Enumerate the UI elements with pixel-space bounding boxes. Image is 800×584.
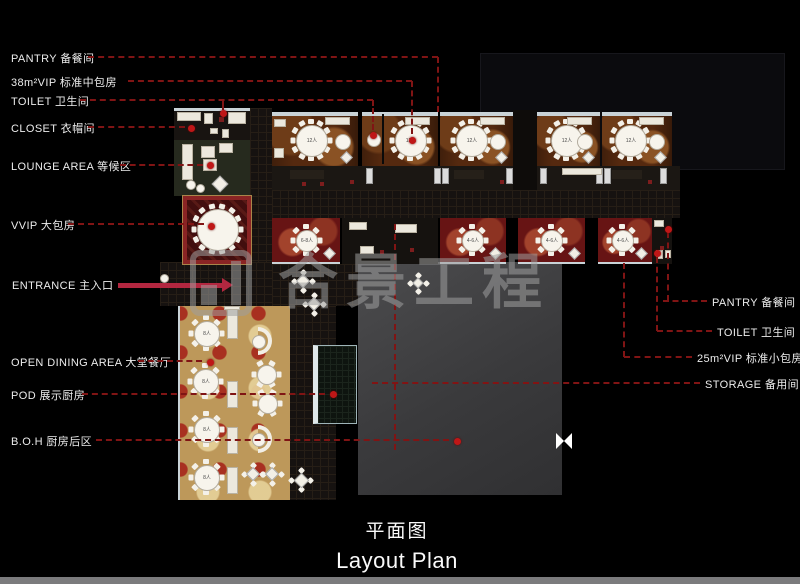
leader-line [96,439,449,441]
chair [535,237,540,243]
equipment-dot [380,250,384,254]
leader-dot [454,438,461,445]
chair [188,474,193,480]
annotation-label: PANTRY 备餐间 [11,50,94,66]
leader-line [411,81,413,134]
planter [224,306,240,310]
leader-line [372,382,700,384]
leader-line [394,224,396,450]
chair [619,224,625,229]
sofa [182,144,193,180]
table-capacity: 4-6人 [617,239,629,244]
table-capacity: 12人 [307,139,318,144]
door [366,168,373,184]
chair [303,224,309,229]
leader-line [88,56,438,58]
sofa [639,117,664,125]
lounge-table [212,176,229,193]
fixture [654,220,664,227]
annotation-label: PANTRY 备餐间 [712,294,795,310]
leader-dot [188,125,195,132]
planter [227,309,238,339]
cabinet [274,119,286,127]
equipment-dot [302,182,306,186]
equipment-dot [648,180,652,184]
annotation-label: B.O.H 厨房后区 [11,433,92,449]
table-capacity: 12人 [467,139,478,144]
equipment-dot [500,180,504,184]
door [442,168,449,184]
door [434,168,441,184]
leader-line [437,57,439,112]
table-capacity: 12人 [626,139,637,144]
annotation-label: POD 展示厨房 [11,387,85,403]
table-capacity: 6-8人 [301,239,313,244]
vip-dining-table: 4-6人 [541,230,563,252]
leader-line [88,126,185,128]
leader-dot [207,359,214,366]
annotation-label: LOUNGE AREA 等候区 [11,158,131,174]
vip-dining-table: 12人 [456,125,488,157]
annotation-label: CLOSET 衣帽间 [11,120,95,136]
stool [186,180,196,190]
armchair [201,146,215,158]
leader-line [667,232,669,301]
door [604,168,611,184]
cabinet [612,170,642,179]
leader-dot [330,391,337,398]
fixture [228,112,246,124]
sofa [405,117,430,125]
chair [290,137,295,143]
annotation-label: TOILET 卫生间 [11,93,89,109]
leader-dot [370,132,377,139]
dining-table: 8人 [194,465,220,491]
fixture [204,113,213,124]
dining-table: 8人 [194,321,220,347]
chair [191,226,196,232]
entry-marker [160,274,169,283]
leader-dot [220,110,227,117]
annotation-label: 25m²VIP 标准小包房 [697,350,800,366]
title-block: 平面图 Layout Plan [297,516,497,574]
leader-line [657,330,712,332]
sofa [480,117,505,125]
leader-line [372,100,374,130]
equipment-dot [320,182,324,186]
square-table [412,277,423,288]
leader-line [82,393,325,395]
booth-table [252,335,266,349]
equipment-dot [410,248,414,252]
fixture [177,112,201,121]
counter [562,168,602,175]
table-capacity: 12人 [562,139,573,144]
door [540,168,547,184]
side-table [577,134,593,150]
sofa [325,117,350,125]
chair [187,378,192,384]
sofa [567,117,592,125]
leader-dot [208,223,215,230]
room-divider [382,114,384,164]
leader-line [68,223,204,225]
chair [469,224,475,229]
equipment-dot [350,180,354,184]
chair [456,237,461,243]
chair [548,224,554,229]
armchair [219,143,233,153]
square-table [293,472,309,488]
chair [308,119,314,124]
cabinet [454,170,484,179]
chair [606,237,611,243]
table-capacity: 8人 [203,428,211,433]
vip-dining-table: 4-6人 [612,230,634,252]
entrance-arrow-head [222,278,233,292]
square-table [246,467,260,481]
annotation-label: STORAGE 备用间 [705,376,799,392]
leader-dot [207,162,214,169]
equipment-dot [219,117,224,122]
annotation-label: VVIP 大包房 [11,217,75,233]
chair [251,371,256,377]
chair [188,426,193,432]
vip-dining-table: 12人 [296,125,328,157]
chair [545,137,550,143]
bottom-bar [0,577,800,584]
fixture [360,246,374,254]
leader-dot [665,226,672,233]
side-table [335,134,351,150]
bowtie-mark-icon [564,433,572,449]
table-capacity: 8人 [203,332,211,337]
dining-table [257,365,277,385]
leader-line [138,360,202,362]
vip-dining-table: 12人 [615,125,647,157]
vip-dining-table: 4-6人 [462,230,484,252]
chair [203,459,209,464]
leader-dot [409,137,416,144]
chair [627,119,633,124]
leader-line [624,356,692,358]
bowtie-mark-icon [556,433,564,449]
square-table [307,297,321,311]
chair [389,137,394,143]
stair-strip [513,110,537,190]
fixture [210,128,218,134]
equipment-dot [660,246,664,250]
planter [227,467,238,494]
vvip-round-table [197,209,239,251]
layout-plan-canvas: 12人12人12人12人12人6-8人4-6人4-6人4-6人8人8人8人8人P… [0,0,800,584]
page-title-en: Layout Plan [297,548,497,574]
vip-dining-table: 6-8人 [296,230,318,252]
stool [196,184,205,193]
chair [252,400,257,406]
side-table [649,134,665,150]
chair [203,315,209,320]
square-table [265,467,279,481]
entrance-arrow [118,283,222,288]
cabinet [290,170,324,179]
page-title-cn: 平面图 [297,516,497,543]
annotation-label: TOILET 卫生间 [717,324,795,340]
leader-line [120,164,203,166]
leader-line [222,100,224,110]
leader-line [663,300,707,302]
chair [188,330,193,336]
chair [450,137,455,143]
chair [609,137,614,143]
fixture [395,224,417,233]
chair [203,411,209,416]
door [506,168,513,184]
chair [290,237,295,243]
annotation-label: 38m²VIP 标准中包房 [11,74,117,90]
fixture [349,222,367,230]
cabinet [274,148,284,158]
chair [468,119,474,124]
side-table [490,134,506,150]
floor-plan: 12人12人12人12人12人6-8人4-6人4-6人4-6人8人8人8人8人P… [0,0,800,584]
leader-line [128,80,412,82]
annotation-label-entrance: ENTRANCE 主入口 [12,277,113,293]
dining-table: 8人 [193,369,219,395]
table-capacity: 4-6人 [546,239,558,244]
fixture [222,129,229,138]
dining-table [258,394,278,414]
table-capacity: 8人 [203,476,211,481]
square-table [296,274,310,288]
table-capacity: 4-6人 [467,239,479,244]
door [660,168,667,184]
leader-line [80,99,373,101]
leader-line [656,257,658,331]
table-capacity: 8人 [202,380,210,385]
leader-dot [654,250,661,257]
leader-line [623,263,625,357]
annotation-label: OPEN DINING AREA 大堂餐厅 [11,354,171,370]
